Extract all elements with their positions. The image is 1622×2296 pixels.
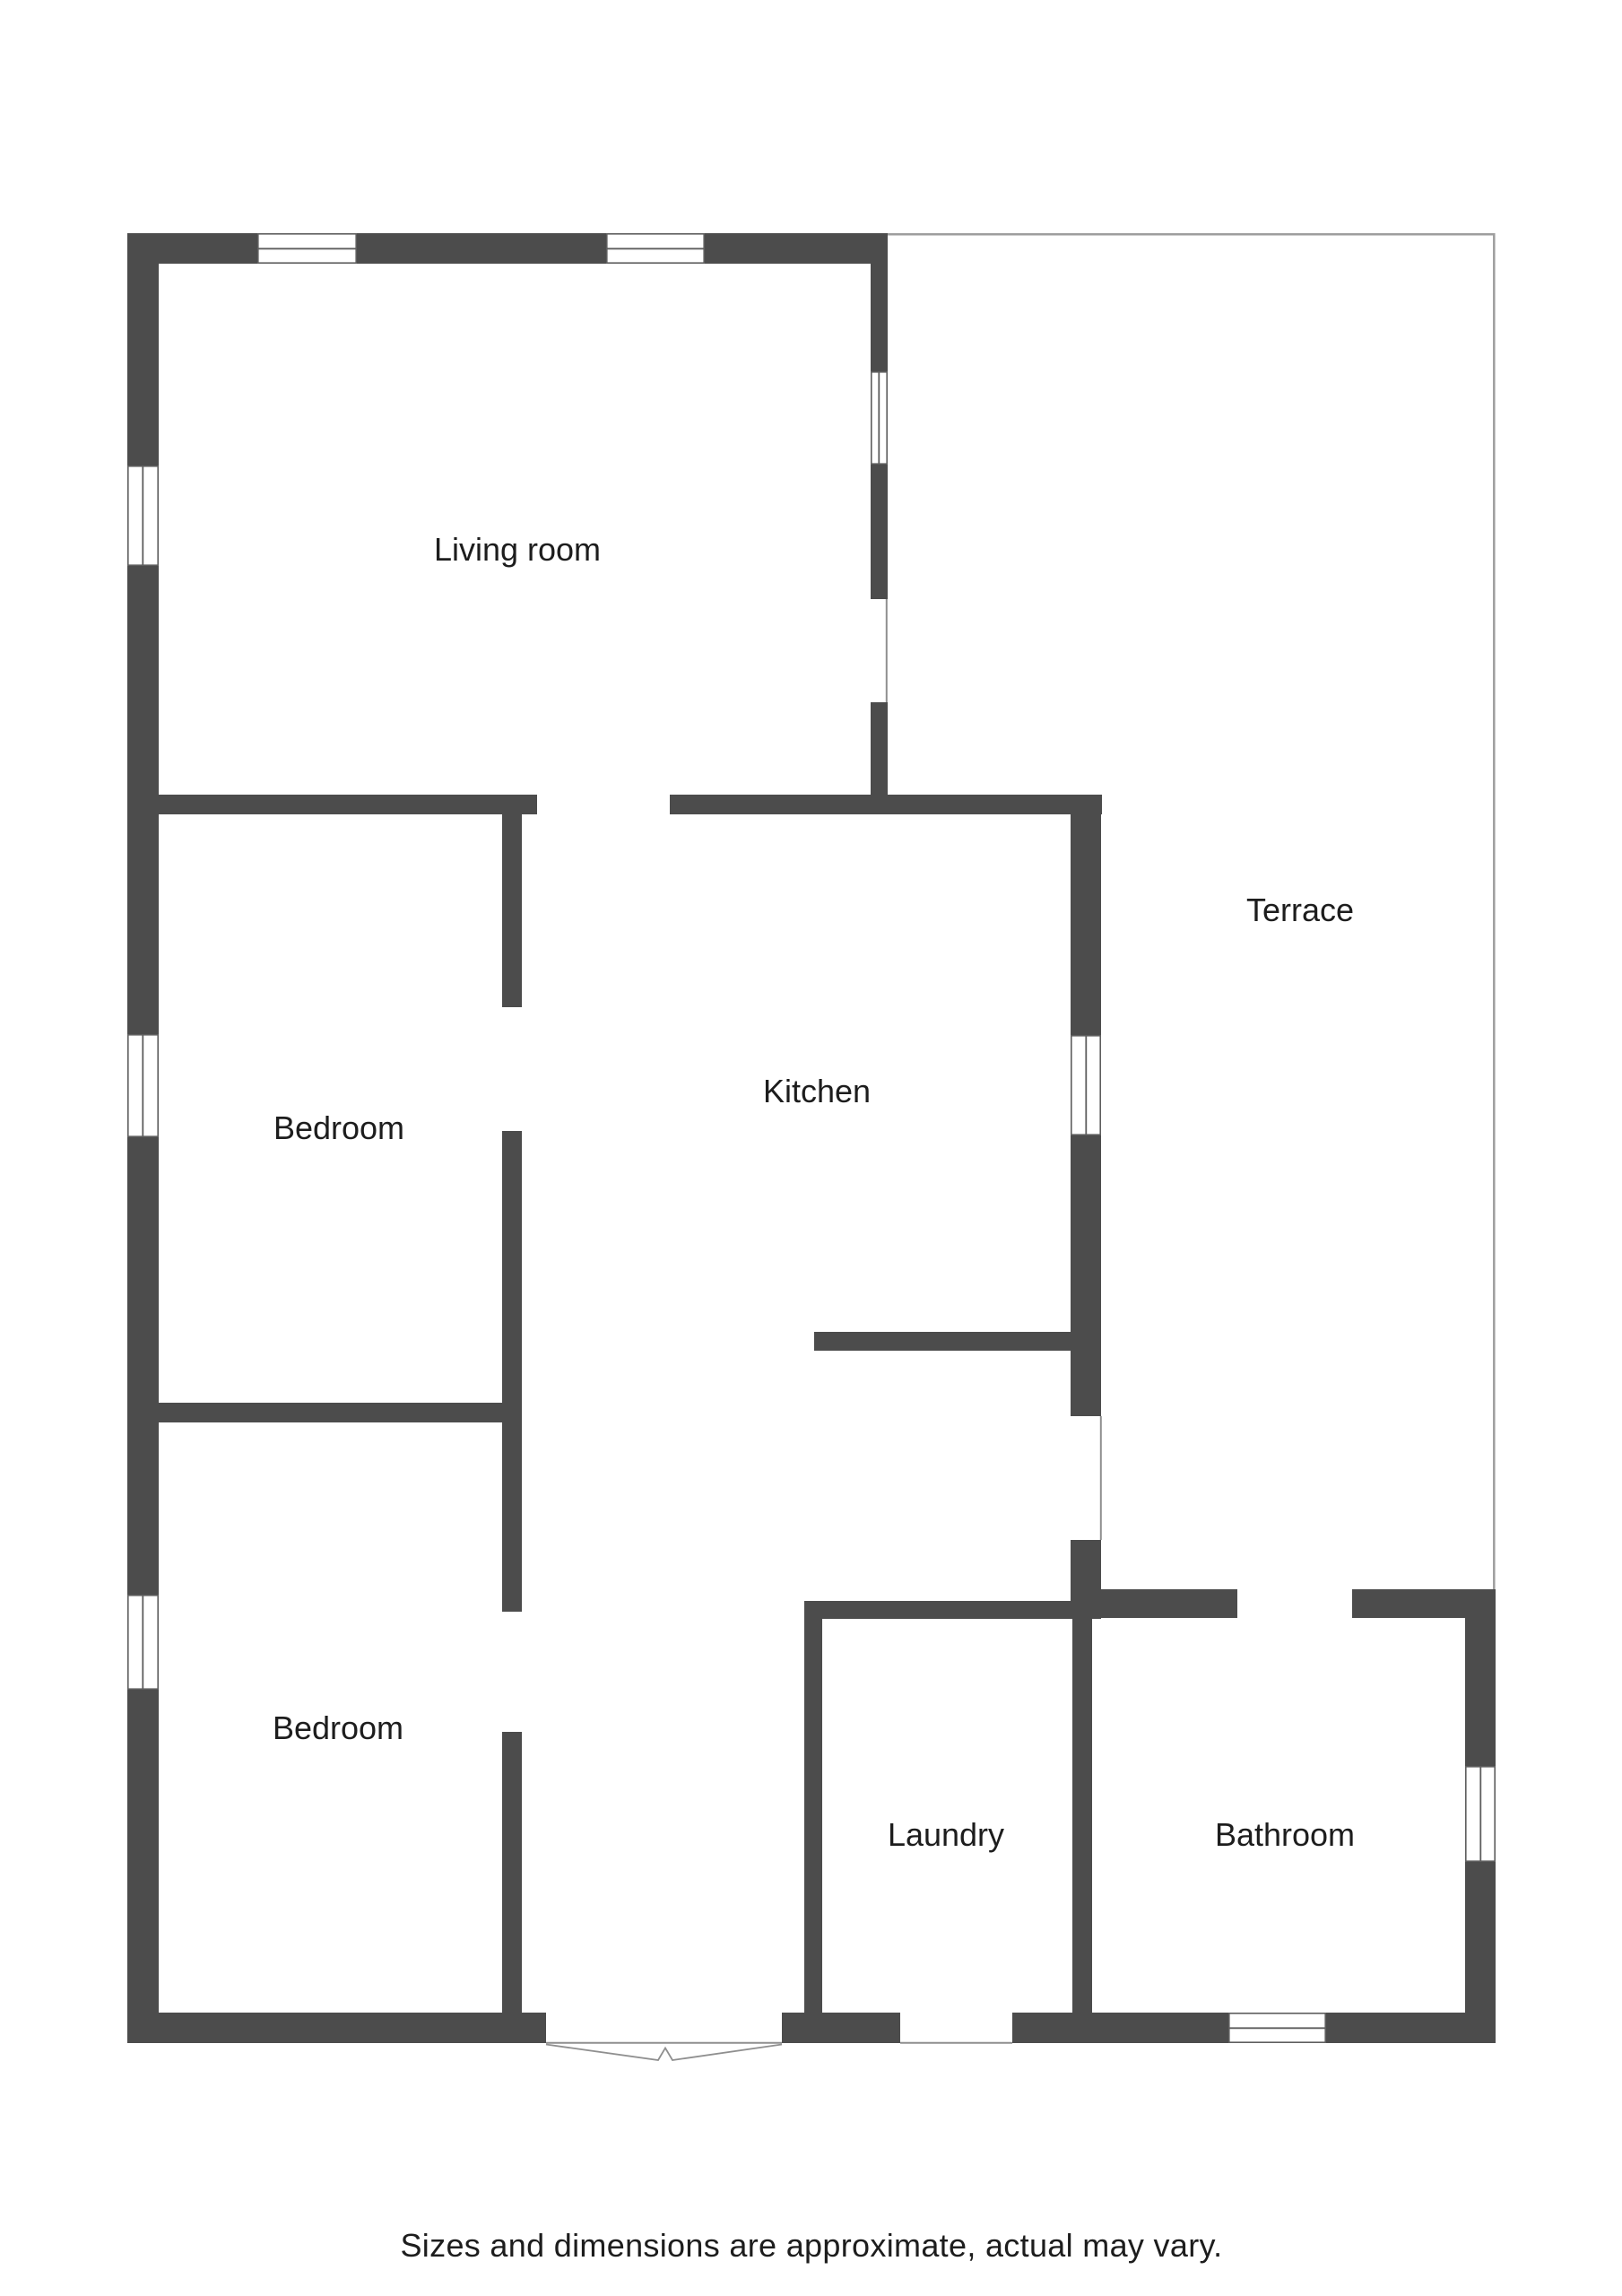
svg-text:Laundry: Laundry [888, 1816, 1004, 1853]
svg-text:Bedroom: Bedroom [273, 1709, 403, 1746]
svg-text:Bathroom: Bathroom [1215, 1816, 1355, 1853]
svg-text:Kitchen: Kitchen [763, 1073, 871, 1109]
svg-text:Sizes and dimensions are appro: Sizes and dimensions are approximate, ac… [400, 2227, 1222, 2264]
svg-text:Terrace: Terrace [1246, 891, 1354, 928]
svg-text:Bedroom: Bedroom [273, 1109, 404, 1146]
svg-text:Living room: Living room [434, 531, 601, 568]
